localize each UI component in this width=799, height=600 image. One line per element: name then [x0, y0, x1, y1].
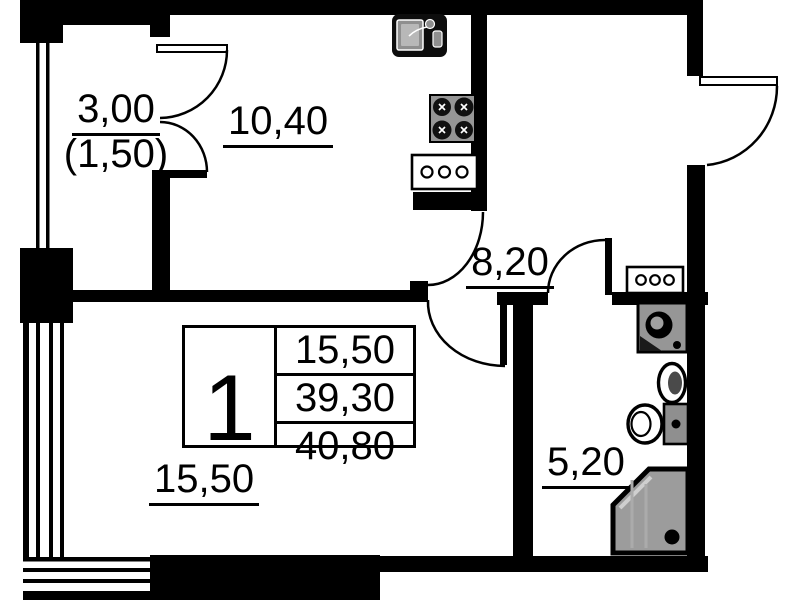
living-room-window-bottom — [23, 557, 150, 600]
toilet-tank-button — [672, 420, 681, 429]
washbasin-icon — [659, 364, 686, 403]
cabinet-knob — [650, 275, 660, 285]
kitchen-area-value: 10,40 — [223, 99, 333, 148]
window-line — [60, 323, 64, 557]
stamp-areas: 15,50 39,30 40,80 — [277, 328, 413, 445]
hallway-cabinet-icon — [627, 267, 683, 293]
living-room-door — [428, 295, 507, 366]
wall-door-hinge-stub — [410, 281, 428, 291]
cabinet-knob — [664, 275, 674, 285]
wall-top-main — [170, 0, 703, 15]
stove-icon — [430, 95, 475, 142]
flat-number: 1 — [185, 328, 277, 445]
window-line — [23, 568, 150, 572]
floor-plan: 3,00 (1,50) 10,40 8,20 15,50 5,20 1 15,5… — [0, 0, 799, 600]
hallway-area-value: 8,20 — [466, 240, 554, 289]
window-line — [23, 323, 29, 557]
balcony-window-line — [46, 43, 50, 249]
window-line — [23, 579, 150, 583]
toilet-icon — [628, 404, 688, 444]
washer-knob — [673, 341, 681, 349]
stamp-living-area: 15,50 — [277, 328, 413, 373]
kitchen-sink-icon — [392, 14, 447, 57]
balcony-door-window-leaf — [157, 45, 227, 52]
cabinet-knob — [422, 167, 433, 178]
living-room-area-value: 15,50 — [149, 457, 259, 506]
entrance-door-swing-arc — [707, 86, 777, 165]
wall-balcony-bottom-block — [20, 248, 73, 323]
wall-right-above-entrance — [687, 0, 703, 76]
wall-balcony-right-upper — [150, 0, 170, 37]
wall-living-room-top — [63, 290, 428, 302]
bathroom-door-leaf — [605, 238, 612, 295]
window-line — [36, 323, 40, 557]
stamp-area: 39,30 — [277, 373, 413, 421]
entrance-door — [700, 77, 777, 165]
washer-door-inner — [651, 317, 664, 330]
stamp-total-area: 40,80 — [277, 421, 413, 469]
apartment-stamp: 1 15,50 39,30 40,80 — [182, 325, 416, 448]
wall-bottom-thick — [150, 555, 380, 600]
cabinet-knob — [636, 275, 646, 285]
shower-drain — [665, 530, 680, 545]
window-line — [23, 591, 150, 600]
toilet-bowl — [628, 405, 662, 443]
bathroom-door — [548, 238, 612, 295]
entrance-door-leaf — [700, 77, 777, 85]
bathroom-area-label: 5,20 — [542, 440, 626, 489]
balcony-area-label: 3,00 — [66, 87, 166, 136]
balcony-reduced-area-label: (1,50) — [61, 132, 171, 177]
sink-handle — [433, 31, 442, 47]
kitchen-area-label: 10,40 — [223, 99, 327, 148]
living-room-door-leaf — [500, 295, 507, 365]
balcony-window — [36, 43, 50, 249]
cabinet-knob — [457, 167, 468, 178]
living-room-area-label: 15,50 — [149, 457, 253, 506]
washing-machine-icon — [638, 303, 687, 352]
hallway-area-label: 8,20 — [465, 240, 555, 289]
wall-bottom-thin — [380, 556, 708, 572]
bathroom-area-value: 5,20 — [542, 440, 630, 489]
living-room-window-left — [23, 323, 64, 557]
balcony-reduced-area-value: (1,50) — [64, 132, 169, 176]
wall-living-bathroom — [513, 305, 533, 557]
wall-corner-top-left-block — [20, 0, 63, 43]
window-line — [49, 323, 53, 557]
bathroom-door-swing-arc — [548, 240, 605, 293]
window-line — [23, 557, 150, 562]
wall-balcony-right-lower — [152, 178, 170, 302]
balcony-door-swing-arc — [160, 50, 227, 118]
cabinet-knob — [439, 167, 450, 178]
balcony-area-value: 3,00 — [72, 87, 160, 136]
balcony-window-line — [36, 43, 40, 249]
living-room-door-swing-arc — [428, 300, 505, 366]
kitchen-cabinet-icon — [412, 155, 477, 189]
washbasin-inner — [668, 372, 682, 395]
